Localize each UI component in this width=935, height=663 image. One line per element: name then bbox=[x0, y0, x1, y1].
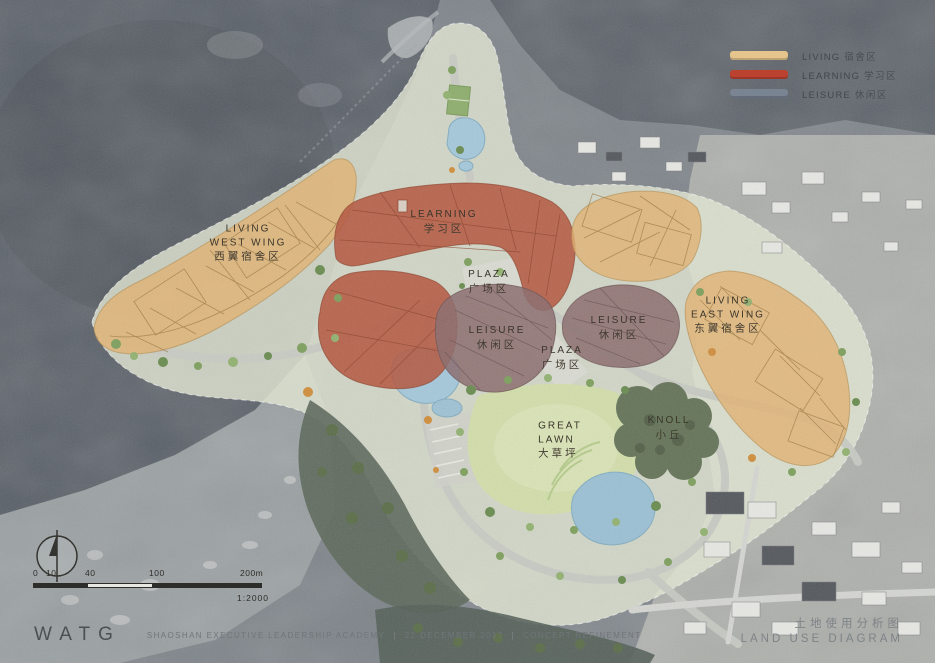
scale-bar-rule bbox=[33, 583, 262, 588]
legend-swatch-leisure bbox=[730, 89, 788, 98]
legend-item-leisure: LEISURE 休闲区 bbox=[730, 84, 897, 103]
scale-tick-200: 200m bbox=[240, 568, 263, 578]
legend-swatch-living bbox=[730, 51, 788, 60]
label-living-east-wing: LIVING EAST WING 东翼宿舍区 bbox=[691, 294, 765, 335]
legend-label-living: LIVING bbox=[802, 52, 840, 63]
legend-item-learning: LEARNING 学习区 bbox=[730, 65, 897, 84]
legend-label-learning: LEARNING bbox=[802, 71, 860, 82]
footer-meta: SHAOSHAN EXECUTIVE LEADERSHIP ACADEMY|22… bbox=[147, 631, 642, 640]
label-learning: LEARNING 学习区 bbox=[410, 208, 477, 236]
label-plaza-south: PLAZA 广场区 bbox=[541, 344, 583, 372]
scale-tick-10: 10 bbox=[46, 568, 56, 578]
legend-item-living: LIVING 宿舍区 bbox=[730, 46, 897, 65]
footer-date: 22 DECEMBER 2017 bbox=[405, 631, 504, 640]
sheet-title: 土地使用分析图 LAND USE DIAGRAM bbox=[741, 615, 903, 645]
footer-project: SHAOSHAN EXECUTIVE LEADERSHIP ACADEMY bbox=[147, 631, 385, 640]
label-knoll: KNOLL 小丘 bbox=[648, 414, 691, 442]
watg-logo: WATG bbox=[34, 624, 121, 646]
label-leisure-central: LEISURE 休闲区 bbox=[469, 324, 526, 352]
scale-tick-0: 0 bbox=[33, 568, 38, 578]
legend: LIVING 宿舍区 LEARNING 学习区 LEISURE 休闲区 bbox=[730, 46, 897, 103]
land-use-diagram: LIVING WEST WING 西翼宿舍区 LEARNING 学习区 PLAZ… bbox=[0, 0, 935, 663]
label-leisure-east: LEISURE 休闲区 bbox=[591, 314, 648, 342]
scale-tick-40: 40 bbox=[85, 568, 95, 578]
label-plaza-north: PLAZA 广场区 bbox=[468, 268, 510, 296]
legend-swatch-learning bbox=[730, 70, 788, 79]
scale-tick-100: 100 bbox=[149, 568, 165, 578]
footer: WATG SHAOSHAN EXECUTIVE LEADERSHIP ACADE… bbox=[34, 624, 642, 646]
scale-ratio: 1:2000 bbox=[237, 593, 269, 603]
label-living-west-wing: LIVING WEST WING 西翼宿舍区 bbox=[210, 222, 287, 263]
legend-label-leisure: LEISURE bbox=[802, 90, 851, 101]
footer-phase: CONCEPT REFINEMENT bbox=[523, 631, 641, 640]
sheet-title-en: LAND USE DIAGRAM bbox=[741, 633, 903, 645]
sheet-title-cn: 土地使用分析图 bbox=[741, 615, 903, 631]
scale-bar: 0 10 40 100 200m 1:2000 bbox=[30, 568, 275, 606]
label-great-lawn: GREAT LAWN 大草坪 bbox=[538, 419, 582, 460]
